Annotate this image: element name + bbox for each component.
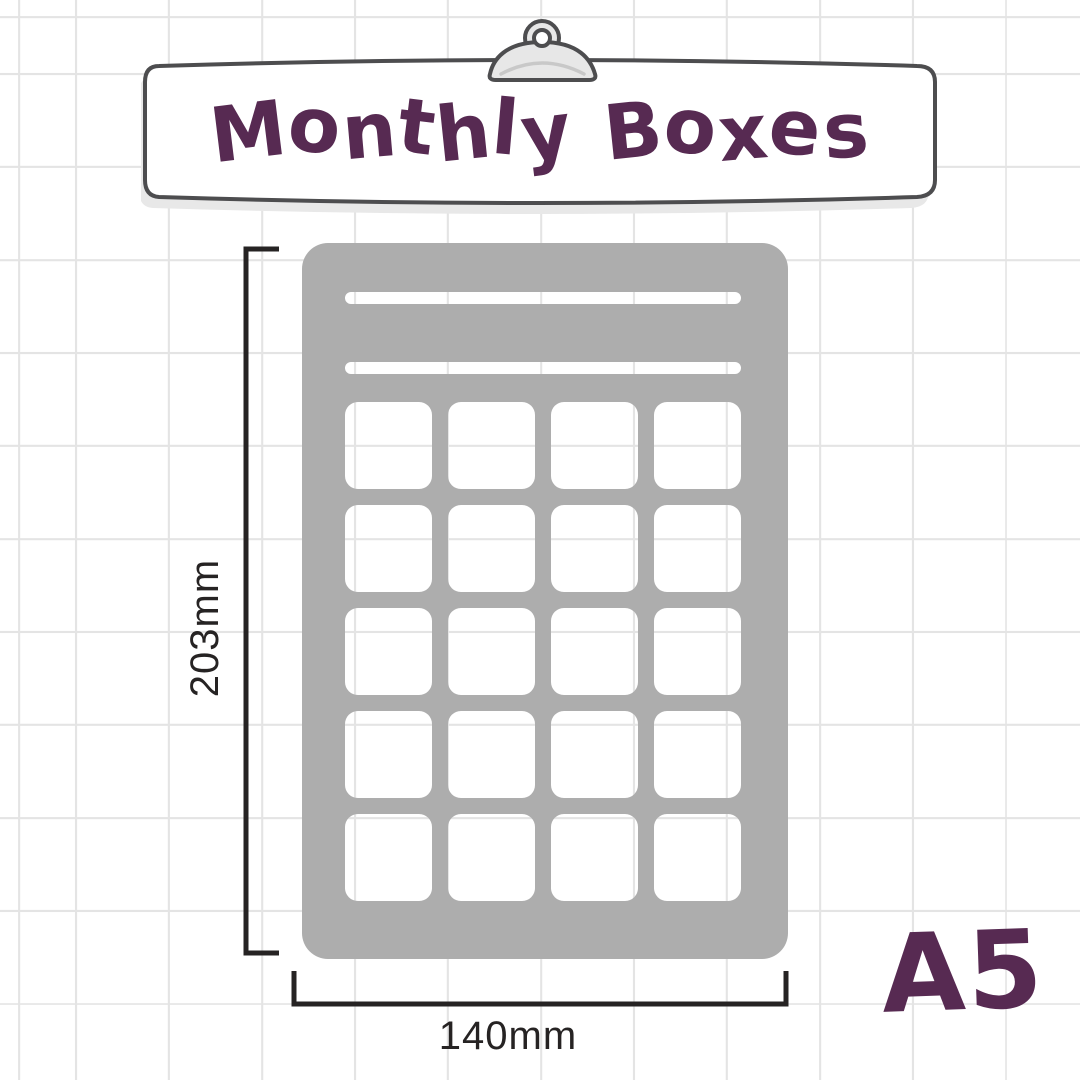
paper-size-label: A5 — [866, 905, 1060, 1042]
stencil-silhouette — [302, 243, 788, 959]
width-dimension-label: 140mm — [388, 1014, 628, 1058]
height-dimension-label: 203mm — [185, 548, 225, 708]
poster-canvas: MonthlyBoxes 203mm 140mm A5 — [0, 0, 1080, 1080]
width-dimension-bracket — [294, 971, 786, 1004]
clip-icon — [483, 16, 603, 86]
clip-ring-hole — [534, 30, 550, 46]
stencil-graphic — [302, 243, 788, 959]
height-dimension-bracket — [246, 249, 279, 953]
page-title: MonthlyBoxes — [145, 80, 935, 180]
